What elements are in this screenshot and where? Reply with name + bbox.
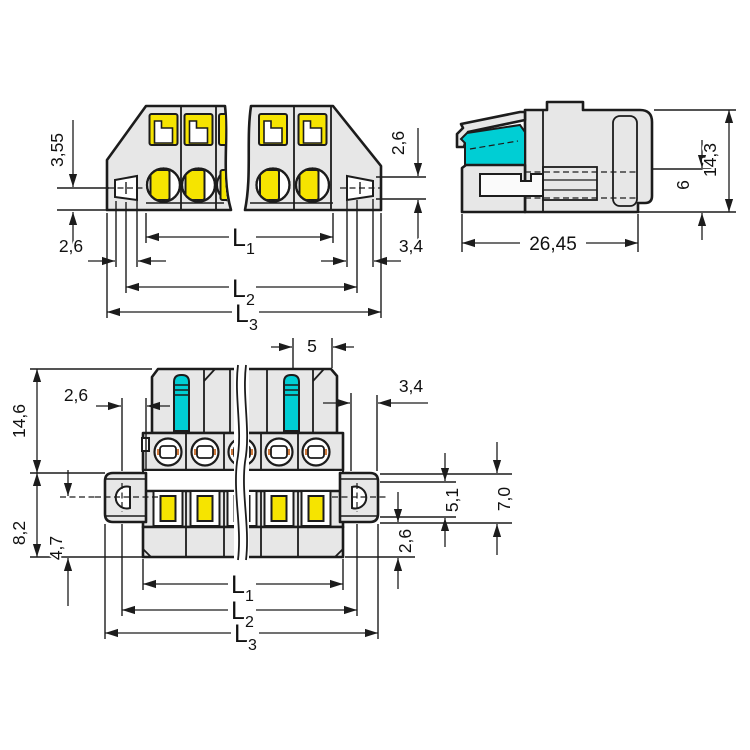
screw — [303, 439, 330, 466]
dim-side-26_45: 26,45 — [529, 234, 577, 255]
dim-side-6: 6 — [673, 180, 693, 190]
dim-side-14_3: 14,3 — [700, 143, 720, 177]
dim-bottom-8_2: 8,2 — [9, 521, 29, 545]
front-wire-entries — [147, 169, 329, 202]
dim-bottom-L1-sub: 1 — [245, 588, 254, 605]
bottom-view: 5 2,6 3,4 14,6 8,2 4,7 — [9, 336, 514, 654]
dim-bottom-L3-sub: 3 — [248, 637, 257, 654]
dim-front-left-2_6: 2,6 — [59, 236, 83, 256]
lever — [284, 375, 299, 431]
dim-front-L3-sub: 3 — [249, 317, 258, 334]
side-main-block — [525, 102, 652, 212]
screw — [155, 439, 182, 466]
window — [150, 114, 178, 145]
window — [299, 114, 327, 145]
dim-front-3_55: 3,55 — [47, 133, 67, 167]
screw — [192, 439, 219, 466]
dim-bottom-5_1: 5,1 — [442, 488, 462, 512]
dim-bottom-right-2_6: 2,6 — [395, 529, 415, 553]
dim-bottom-4_7: 4,7 — [46, 536, 66, 560]
dim-bottom-L1: L — [231, 571, 245, 599]
lever — [174, 375, 189, 431]
connector-dimensional-drawing: 3,55 2,6 2,6 3,4 L 1 — [0, 0, 750, 750]
technical-drawing-page: 3,55 2,6 2,6 3,4 L 1 — [0, 0, 750, 750]
dim-front-3_4: 3,4 — [399, 236, 424, 256]
bottom-flange-right — [332, 473, 388, 522]
bottom-lever-band-left — [152, 369, 238, 433]
dim-front-L1-sub: 1 — [246, 241, 255, 258]
front-terminal-windows — [150, 114, 327, 145]
dim-front-L3: L — [235, 300, 249, 328]
front-view: 3,55 2,6 2,6 3,4 L 1 — [47, 106, 426, 334]
dim-bottom-5: 5 — [307, 336, 317, 356]
dim-bottom-L3: L — [234, 620, 248, 648]
side-slot — [480, 174, 543, 196]
window — [185, 114, 213, 145]
window — [259, 114, 287, 145]
screw — [266, 439, 293, 466]
dim-front-L2: L — [232, 275, 246, 303]
dim-bottom-3_4: 3,4 — [399, 376, 424, 396]
dim-bottom-14_6: 14,6 — [9, 404, 29, 438]
dim-front-right-2_6: 2,6 — [388, 131, 408, 155]
dim-bottom-7_0: 7,0 — [494, 487, 514, 512]
dim-front-L1: L — [232, 224, 246, 252]
dim-bottom-left-2_6: 2,6 — [64, 385, 88, 405]
side-view: 26,45 6 14,3 — [457, 102, 736, 255]
